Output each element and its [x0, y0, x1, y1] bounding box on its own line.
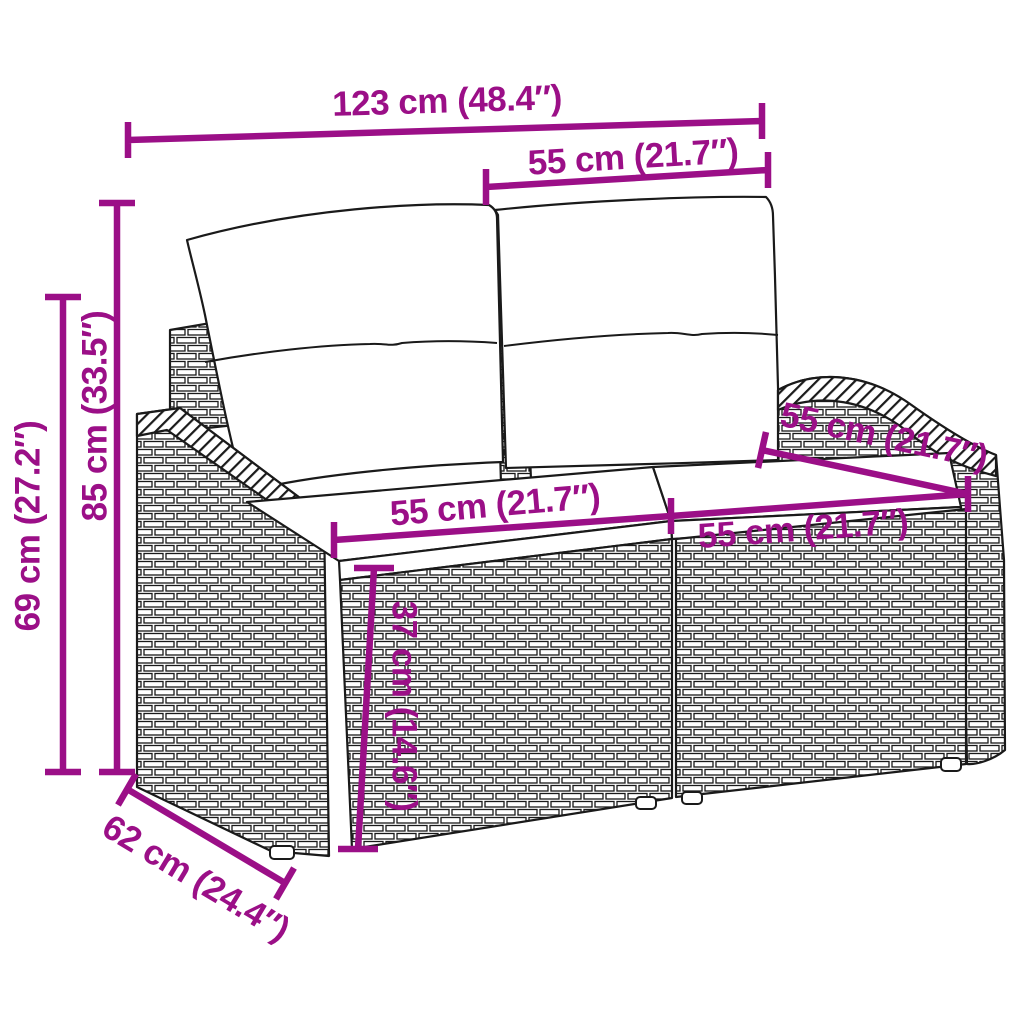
sofa-leg: [941, 758, 961, 771]
sofa-dimension-drawing: 123 cm (48.4″) 55 cm (21.7″) 85 cm (33.5…: [0, 0, 1024, 1024]
dimension-label-overall-height: 85 cm (33.5″): [76, 311, 115, 522]
back-cushion-right: [495, 197, 780, 468]
dimension-overall-height: 85 cm (33.5″): [76, 203, 136, 772]
dimension-armrest-height: 69 cm (27.2″): [9, 297, 82, 772]
sofa-leg: [682, 792, 702, 804]
sofa-leg: [636, 797, 656, 809]
sofa-leg: [270, 846, 294, 859]
dimension-label-overall-width: 123 cm (48.4″): [332, 78, 563, 124]
dimension-label-seat-height: 37 cm (14.6″): [385, 601, 424, 812]
dimension-backrest-width: 55 cm (21.7″): [486, 131, 768, 205]
dimension-label-armrest-height: 69 cm (27.2″): [9, 421, 48, 632]
dimension-diagram: 123 cm (48.4″) 55 cm (21.7″) 85 cm (33.5…: [0, 0, 1024, 1024]
